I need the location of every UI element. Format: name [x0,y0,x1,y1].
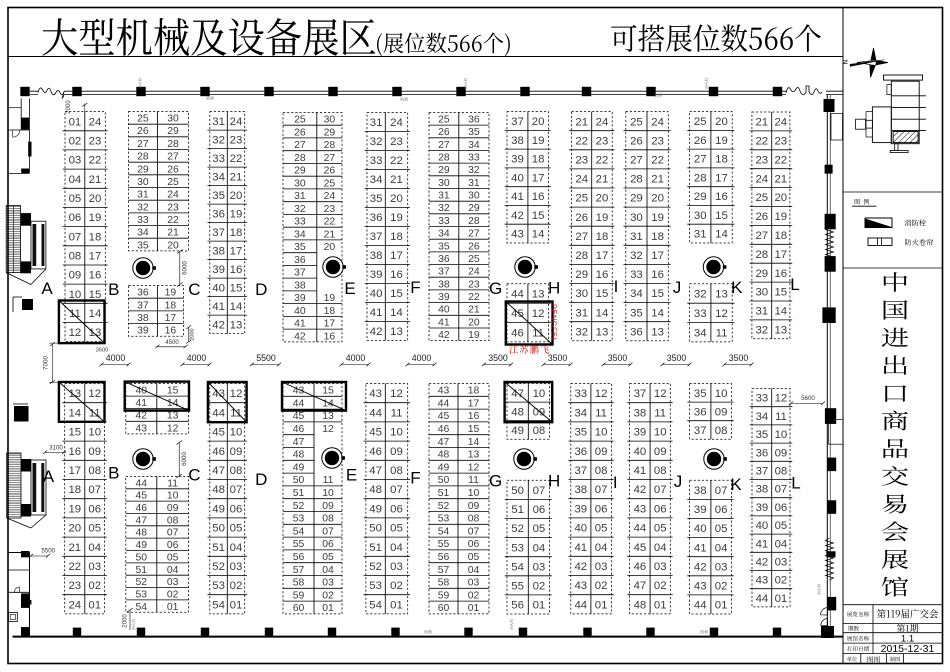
svg-text:29: 29 [694,191,707,203]
svg-text:18: 18 [324,306,336,317]
svg-text:35: 35 [370,193,383,205]
svg-text:28: 28 [630,174,643,186]
svg-text:22: 22 [468,292,480,303]
svg-text:48: 48 [511,407,524,419]
svg-text:34: 34 [294,229,306,240]
svg-text:01: 01 [230,599,243,611]
svg-text:10: 10 [775,429,788,441]
svg-text:21: 21 [774,173,787,185]
svg-text:34: 34 [574,407,587,419]
svg-text:43: 43 [694,581,707,593]
svg-text:20: 20 [89,193,102,205]
svg-text:29: 29 [468,203,480,214]
svg-text:21: 21 [596,174,609,186]
svg-text:26: 26 [468,241,480,252]
svg-text:42: 42 [511,210,524,222]
svg-text:01: 01 [322,603,334,614]
svg-text:33: 33 [468,153,480,164]
svg-text:21: 21 [755,117,768,129]
svg-text:31: 31 [137,190,149,201]
svg-text:48: 48 [293,450,305,461]
svg-text:27: 27 [694,154,707,166]
svg-text:51: 51 [293,488,305,499]
svg-text:21: 21 [89,174,102,186]
svg-text:44: 44 [756,593,769,605]
svg-text:03: 03 [167,577,179,588]
svg-text:01: 01 [69,116,82,128]
svg-text:11: 11 [323,475,334,486]
svg-text:10: 10 [715,388,728,400]
svg-text:I: I [613,473,618,492]
svg-text:24: 24 [167,190,179,201]
svg-text:30: 30 [167,114,179,125]
svg-text:06: 06 [88,503,101,515]
svg-text:34: 34 [212,172,225,184]
svg-text:J: J [673,278,682,297]
svg-text:13: 13 [596,326,609,338]
svg-text:45: 45 [634,542,647,554]
svg-text:15: 15 [322,386,334,397]
svg-text:E: E [346,466,357,485]
svg-text:18: 18 [532,154,545,166]
svg-text:14: 14 [68,407,81,419]
svg-text:46: 46 [136,503,148,514]
svg-text:58: 58 [293,578,305,589]
svg-text:37: 37 [438,267,450,278]
svg-text:02: 02 [69,136,82,148]
svg-text:16: 16 [596,269,609,281]
svg-text:27: 27 [438,140,450,151]
svg-text:23: 23 [651,135,664,147]
svg-text:12: 12 [775,393,788,405]
svg-text:11: 11 [716,327,728,339]
svg-text:07: 07 [230,484,243,496]
svg-text:4500: 4500 [165,340,179,346]
svg-text:17: 17 [230,246,243,258]
svg-text:17: 17 [165,313,177,324]
svg-text:50: 50 [293,475,305,486]
svg-text:28: 28 [324,140,336,151]
svg-text:37: 37 [212,227,225,239]
svg-text:01: 01 [167,602,179,613]
svg-text:32: 32 [438,203,450,214]
svg-text:09: 09 [533,407,546,419]
svg-text:41: 41 [294,319,306,330]
svg-text:26: 26 [575,212,588,224]
svg-text:20: 20 [230,190,243,202]
svg-text:43: 43 [136,423,148,434]
svg-text:34: 34 [438,229,450,240]
svg-text:42: 42 [136,411,148,422]
svg-text:23: 23 [390,136,403,148]
svg-text:6000: 6000 [181,452,188,466]
svg-text:4000: 4000 [106,353,126,363]
svg-text:22: 22 [89,155,102,167]
svg-text:52: 52 [293,501,305,512]
svg-text:17: 17 [774,249,787,261]
svg-text:03: 03 [654,561,667,573]
svg-text:31: 31 [468,178,480,189]
svg-text:15: 15 [230,283,243,295]
svg-text:12: 12 [468,462,480,473]
svg-text:15: 15 [390,288,403,300]
svg-text:05: 05 [322,552,334,563]
svg-text:41: 41 [136,398,148,409]
svg-text:03: 03 [69,155,82,167]
svg-text:46: 46 [634,561,647,573]
svg-text:36: 36 [294,255,306,266]
svg-text:04: 04 [322,565,334,576]
svg-text:C: C [188,280,200,299]
svg-text:07: 07 [468,526,480,537]
svg-text:40: 40 [438,305,450,316]
svg-text:29: 29 [167,126,179,137]
svg-text:03: 03 [322,578,334,589]
svg-text:L: L [790,275,799,294]
svg-text:08: 08 [533,425,546,437]
svg-text:38: 38 [511,135,524,147]
svg-text:18: 18 [715,154,728,166]
svg-text:04: 04 [468,565,480,576]
svg-text:11: 11 [468,475,479,486]
svg-text:06: 06 [595,503,608,515]
svg-text:37: 37 [370,231,383,243]
svg-text:22: 22 [755,136,768,148]
svg-text:03: 03 [88,561,101,573]
svg-text:24: 24 [68,599,81,611]
svg-text:22: 22 [68,561,81,573]
svg-text:45: 45 [438,411,450,422]
svg-text:28: 28 [137,152,149,163]
svg-text:B: B [108,280,119,299]
svg-text:08: 08 [322,514,334,525]
svg-text:24: 24 [324,191,336,202]
svg-text:37: 37 [294,268,306,279]
svg-text:27: 27 [137,139,149,150]
svg-text:54: 54 [438,526,450,537]
svg-text:17: 17 [715,172,728,184]
svg-text:15: 15 [532,210,545,222]
svg-text:04: 04 [230,542,243,554]
svg-text:18: 18 [468,386,480,397]
svg-text:26: 26 [694,135,707,147]
svg-text:15: 15 [68,427,81,439]
svg-text:20: 20 [167,240,179,251]
svg-text:24: 24 [468,267,480,278]
svg-text:45: 45 [136,491,148,502]
svg-text:36: 36 [630,326,643,338]
svg-text:39: 39 [212,264,225,276]
svg-text:27: 27 [468,229,480,240]
svg-text:02: 02 [654,580,667,592]
svg-text:06: 06 [715,504,728,516]
svg-text:01: 01 [468,603,480,614]
svg-text:22: 22 [596,155,609,167]
svg-text:04: 04 [69,174,82,186]
svg-text:37: 37 [574,465,587,477]
svg-text:07: 07 [533,485,546,497]
svg-text:41: 41 [574,542,587,554]
svg-text:24: 24 [755,173,768,185]
svg-text:06: 06 [468,539,480,550]
svg-text:10: 10 [595,427,608,439]
svg-text:29: 29 [630,193,643,205]
svg-text:15: 15 [89,289,102,301]
svg-text:06: 06 [390,503,403,515]
svg-text:32: 32 [370,136,383,148]
svg-text:24: 24 [89,116,102,128]
svg-text:31: 31 [755,306,768,318]
svg-text:18: 18 [89,231,102,243]
svg-text:52: 52 [438,501,450,512]
svg-text:03: 03 [595,561,608,573]
svg-text:13: 13 [715,289,728,301]
svg-text:4000: 4000 [412,353,432,363]
svg-text:29: 29 [438,165,450,176]
svg-text:57: 57 [293,565,305,576]
svg-text:20: 20 [596,193,609,205]
svg-text:11: 11 [595,407,607,419]
svg-text:14: 14 [89,308,102,320]
svg-text:44: 44 [212,407,225,419]
svg-text:48: 48 [136,528,148,539]
svg-text:33: 33 [694,308,707,320]
svg-text:32: 32 [694,289,707,301]
svg-text:19: 19 [165,288,177,299]
svg-text:49: 49 [136,540,148,551]
svg-text:42: 42 [370,326,383,338]
svg-text:51: 51 [511,504,524,516]
svg-text:11: 11 [654,407,666,419]
svg-text:01: 01 [715,600,728,612]
svg-text:14: 14 [651,307,664,319]
svg-text:41: 41 [370,307,383,319]
svg-text:11: 11 [532,327,544,339]
svg-text:05: 05 [775,520,788,532]
svg-text:18: 18 [596,231,609,243]
svg-text:50: 50 [136,552,148,563]
svg-text:22: 22 [390,155,403,167]
svg-text:45: 45 [369,427,382,439]
svg-text:A: A [43,467,55,486]
svg-text:01: 01 [654,599,667,611]
svg-text:05: 05 [533,523,546,535]
svg-text:3500: 3500 [96,348,108,354]
svg-text:29: 29 [294,166,306,177]
svg-text:52: 52 [136,577,148,588]
svg-text:41: 41 [212,301,225,313]
svg-text:16: 16 [651,269,664,281]
svg-text:19: 19 [390,212,403,224]
svg-text:12: 12 [532,308,545,320]
svg-text:2000: 2000 [66,100,72,114]
svg-text:25: 25 [438,115,450,126]
svg-text:24: 24 [596,116,609,128]
svg-text:08: 08 [595,465,608,477]
svg-text:45: 45 [511,308,524,320]
svg-text:60: 60 [293,603,305,614]
svg-text:02: 02 [230,580,243,592]
svg-text:43: 43 [634,503,647,515]
svg-text:35: 35 [294,242,306,253]
svg-text:17: 17 [89,251,102,263]
svg-text:24: 24 [230,116,243,128]
svg-text:38: 38 [438,279,450,290]
svg-text:31: 31 [212,116,225,128]
svg-text:26: 26 [137,126,149,137]
svg-text:2000: 2000 [190,328,196,340]
svg-text:20: 20 [468,317,480,328]
svg-text:19: 19 [230,209,243,221]
svg-text:01: 01 [88,599,101,611]
svg-text:15: 15 [468,424,480,435]
svg-text:09: 09 [775,447,788,459]
svg-text:02: 02 [167,590,179,601]
svg-text:29: 29 [137,164,149,175]
svg-text:31: 31 [438,191,450,202]
svg-text:42: 42 [212,320,225,332]
svg-text:03: 03 [775,557,788,569]
svg-text:02: 02 [390,580,403,592]
svg-text:11: 11 [230,407,242,419]
svg-text:16: 16 [774,268,787,280]
svg-text:19: 19 [596,212,609,224]
svg-text:42: 42 [756,557,769,569]
svg-text:46: 46 [511,327,524,339]
svg-text:12: 12 [322,424,334,435]
svg-text:20: 20 [774,192,787,204]
svg-text:20: 20 [390,193,403,205]
svg-text:04: 04 [390,542,403,554]
svg-text:33: 33 [137,215,149,226]
svg-text:16: 16 [324,331,336,342]
svg-text:28: 28 [438,153,450,164]
svg-text:18: 18 [68,484,81,496]
svg-text:05: 05 [69,193,82,205]
svg-text:23: 23 [89,136,102,148]
svg-text:54: 54 [136,602,148,613]
svg-text:09: 09 [595,446,608,458]
svg-text:34: 34 [694,327,707,339]
svg-text:53: 53 [136,590,148,601]
svg-text:30: 30 [468,191,480,202]
svg-text:23: 23 [575,155,588,167]
svg-text:32: 32 [575,326,588,338]
svg-text:08: 08 [230,465,243,477]
svg-text:21: 21 [167,228,179,239]
svg-text:21: 21 [390,174,403,186]
svg-text:27: 27 [167,152,179,163]
svg-text:48: 48 [212,484,225,496]
svg-text:38: 38 [294,280,306,291]
svg-text:06: 06 [230,503,243,515]
svg-text:12: 12 [230,388,243,400]
svg-text:09: 09 [167,503,179,514]
svg-text:20: 20 [651,193,664,205]
svg-text:49: 49 [438,462,450,473]
svg-text:21: 21 [230,172,243,184]
svg-text:09: 09 [230,446,243,458]
svg-text:44: 44 [574,599,587,611]
svg-text:23: 23 [596,135,609,147]
svg-text:30: 30 [294,178,306,189]
svg-text:47: 47 [369,465,382,477]
svg-text:31: 31 [575,307,588,319]
svg-text:5500: 5500 [41,547,55,554]
svg-text:51: 51 [438,488,450,499]
svg-text:21: 21 [68,542,81,554]
svg-text:16: 16 [468,411,480,422]
svg-text:50: 50 [438,475,450,486]
svg-text:20: 20 [532,116,545,128]
svg-text:11: 11 [69,308,81,320]
svg-text:12: 12 [595,388,608,400]
svg-text:58: 58 [438,578,450,589]
svg-text:50: 50 [369,523,382,535]
svg-text:25: 25 [468,254,480,265]
svg-text:10: 10 [654,427,667,439]
svg-text:25: 25 [137,114,149,125]
svg-text:06: 06 [167,540,179,551]
svg-text:46: 46 [369,446,382,458]
svg-text:52: 52 [212,561,225,573]
svg-text:40: 40 [756,520,769,532]
svg-text:51: 51 [136,565,148,576]
svg-text:10: 10 [167,491,179,502]
svg-text:04: 04 [595,542,608,554]
svg-text:12: 12 [167,423,179,434]
svg-text:36: 36 [574,446,587,458]
svg-text:16: 16 [89,270,102,282]
svg-text:11: 11 [775,411,787,423]
svg-text:08: 08 [715,425,728,437]
svg-text:47: 47 [293,437,305,448]
svg-text:13: 13 [532,289,545,301]
svg-text:36: 36 [137,288,149,299]
svg-text:18: 18 [230,227,243,239]
svg-text:05: 05 [468,552,480,563]
svg-text:40: 40 [370,288,383,300]
svg-text:23: 23 [167,202,179,213]
svg-text:45: 45 [293,411,305,422]
svg-text:08: 08 [88,465,101,477]
svg-text:12: 12 [69,327,82,339]
svg-text:20: 20 [68,523,81,535]
svg-text:37: 37 [634,388,647,400]
svg-text:16: 16 [390,269,403,281]
svg-text:22: 22 [774,154,787,166]
svg-text:19: 19 [324,293,336,304]
svg-text:32: 32 [468,165,480,176]
svg-text:46: 46 [212,446,225,458]
svg-text:08: 08 [654,465,667,477]
svg-text:22: 22 [575,135,588,147]
svg-text:G: G [489,471,502,490]
svg-text:36: 36 [370,212,383,224]
svg-text:52: 52 [511,523,524,535]
svg-text:54: 54 [511,561,524,573]
svg-text:21: 21 [575,116,588,128]
svg-text:07: 07 [654,484,667,496]
svg-text:40: 40 [574,523,587,535]
svg-text:23: 23 [230,135,243,147]
svg-text:35: 35 [694,388,707,400]
svg-text:47: 47 [438,437,450,448]
svg-text:14: 14 [715,229,728,241]
svg-text:13: 13 [68,388,81,400]
svg-text:08: 08 [775,466,788,478]
svg-text:14: 14 [230,301,243,313]
